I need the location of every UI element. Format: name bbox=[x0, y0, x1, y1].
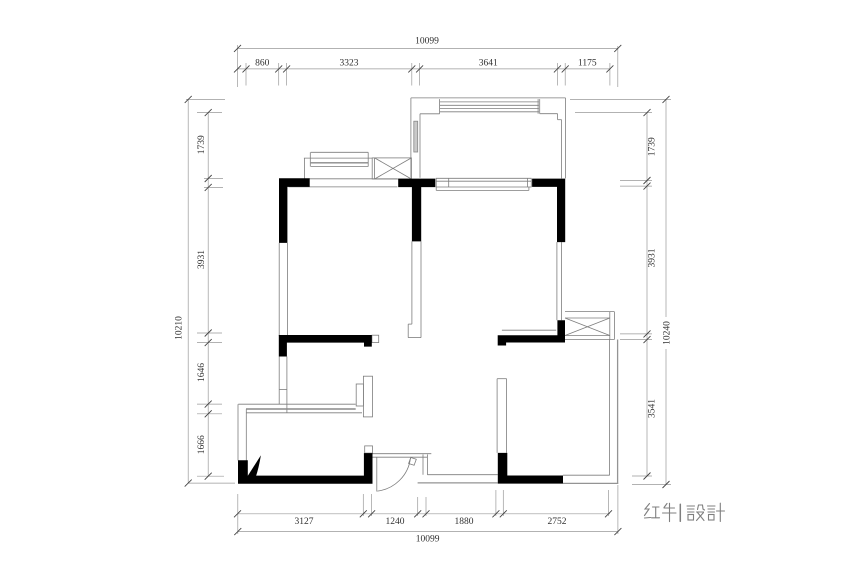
svg-text:1175: 1175 bbox=[578, 59, 597, 69]
svg-text:2752: 2752 bbox=[548, 517, 567, 527]
svg-text:10099: 10099 bbox=[416, 535, 440, 545]
svg-text:3931: 3931 bbox=[197, 250, 207, 269]
svg-text:10099: 10099 bbox=[415, 37, 439, 47]
svg-text:1739: 1739 bbox=[648, 137, 658, 156]
svg-text:860: 860 bbox=[255, 59, 270, 69]
svg-text:3641: 3641 bbox=[479, 59, 498, 69]
svg-text:3541: 3541 bbox=[648, 399, 658, 418]
svg-text:1739: 1739 bbox=[197, 135, 207, 154]
svg-text:10240: 10240 bbox=[663, 321, 673, 345]
svg-text:1880: 1880 bbox=[455, 517, 474, 527]
svg-text:3127: 3127 bbox=[295, 517, 314, 527]
svg-text:1646: 1646 bbox=[197, 363, 207, 382]
svg-text:10210: 10210 bbox=[175, 316, 185, 340]
svg-text:3931: 3931 bbox=[648, 248, 658, 267]
svg-text:1240: 1240 bbox=[386, 517, 405, 527]
svg-text:1666: 1666 bbox=[197, 435, 207, 454]
svg-text:3323: 3323 bbox=[340, 59, 359, 69]
